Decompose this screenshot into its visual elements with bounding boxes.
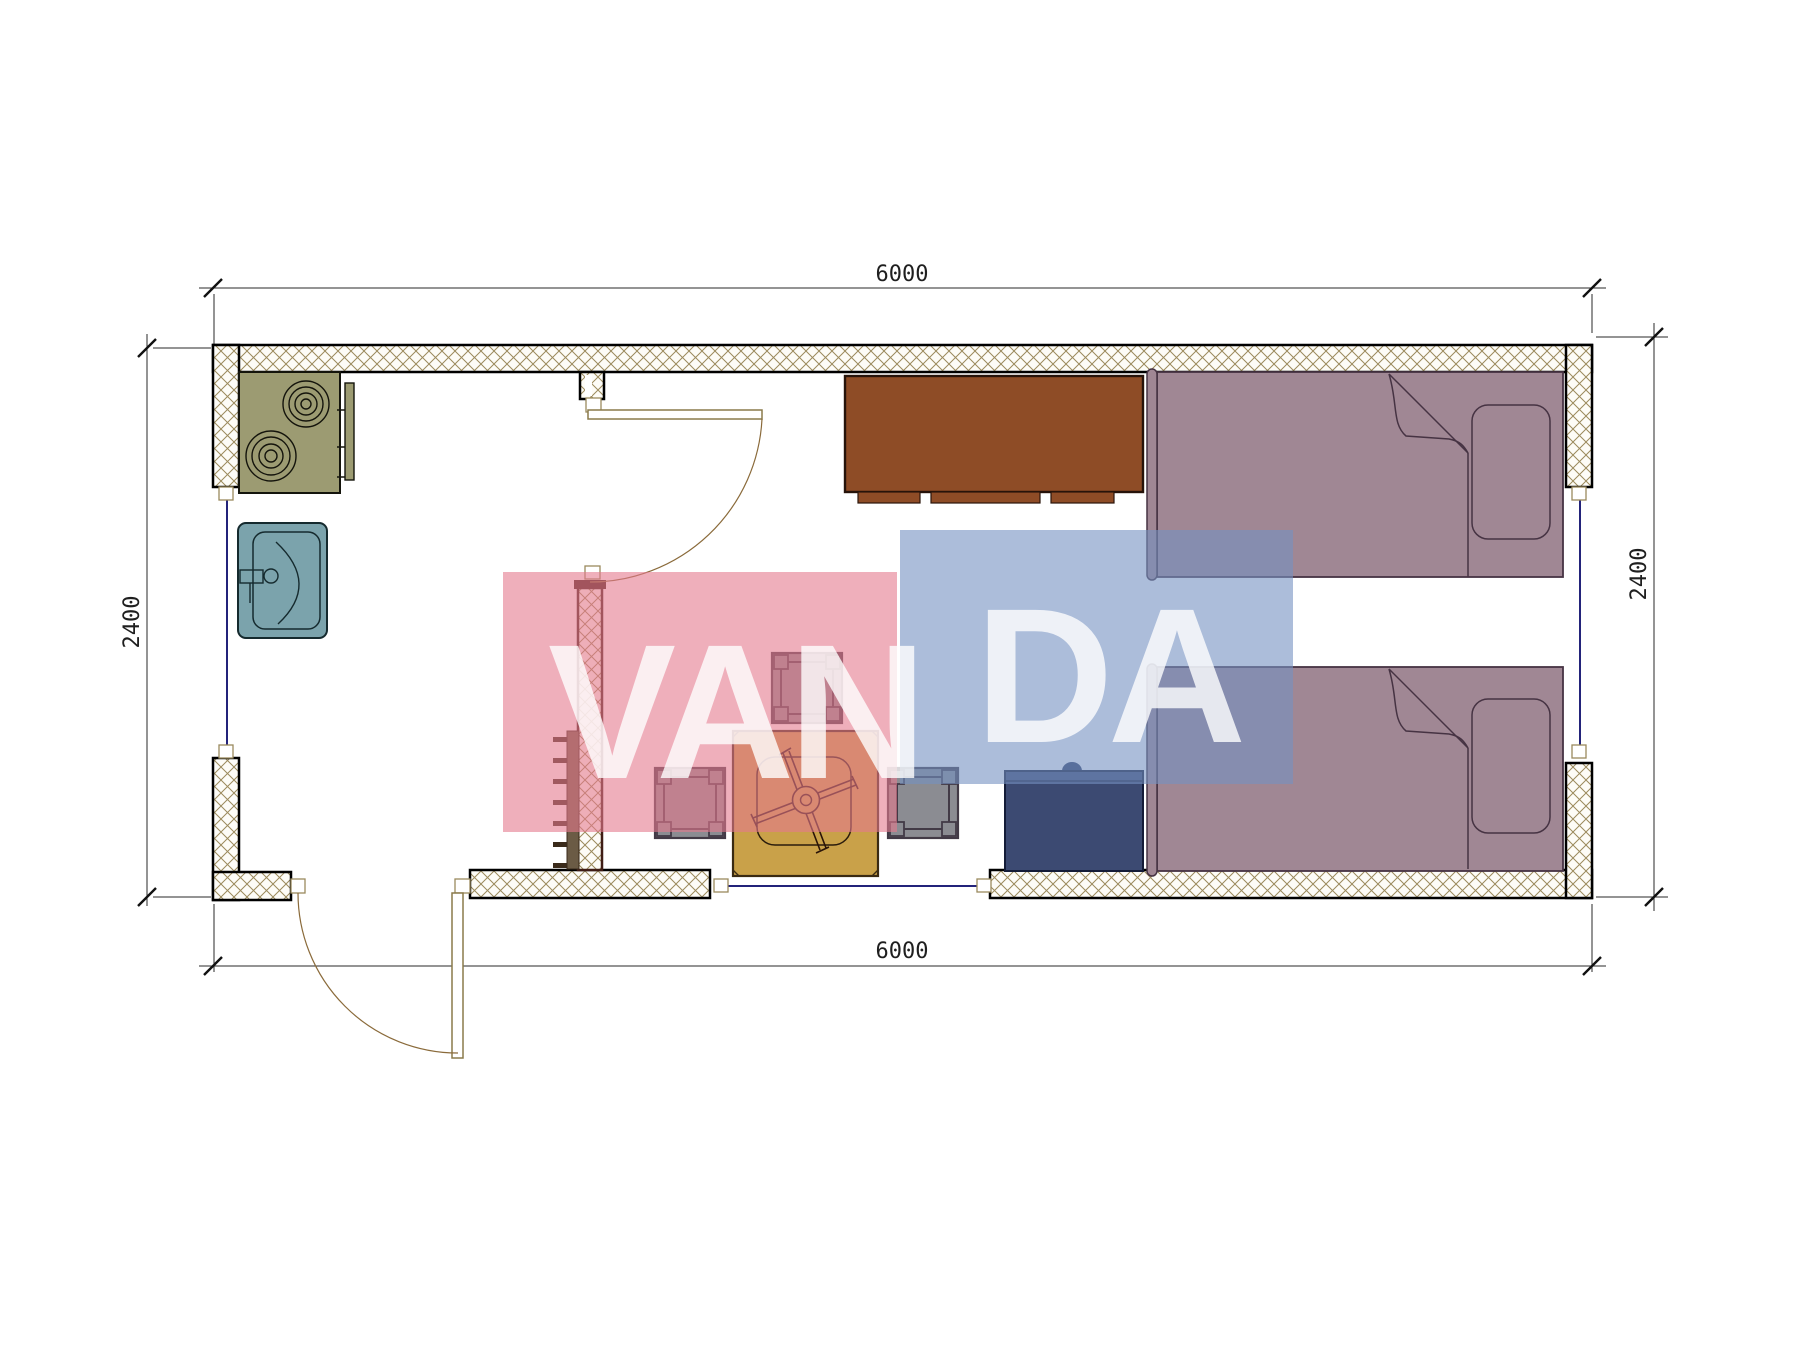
counter-bar [345, 383, 354, 480]
wall-top [213, 345, 1592, 372]
watermark-text-da: DA [975, 568, 1242, 783]
dimension-right: 2400 [1596, 323, 1668, 911]
entry-door-leaf [452, 893, 463, 1058]
interior-door-swing-arc [590, 419, 762, 582]
frame-block [714, 879, 728, 892]
stove-symbol [239, 372, 354, 493]
bed-pillow [1472, 405, 1550, 539]
door-frame-slot [585, 375, 592, 396]
interior-door [585, 398, 762, 582]
wardrobe-door-track [1051, 492, 1114, 503]
frame-block [977, 879, 991, 892]
wardrobe-symbol [845, 376, 1143, 503]
wall-bottom-right [990, 870, 1592, 898]
wardrobe-door-track [931, 492, 1040, 503]
entry-door [291, 879, 470, 1058]
dimension-left: 2400 [120, 334, 211, 906]
frame-block [219, 487, 233, 500]
frame-block [455, 879, 470, 893]
interior-door-leaf [588, 410, 762, 419]
wall-right-lower [1566, 763, 1592, 898]
wall-left-upper [213, 345, 239, 487]
watermark-text-van: VAN [548, 604, 921, 819]
wall-bottom-middle [470, 870, 710, 898]
floor-plan-canvas: 6000 6000 2400 2400 [0, 0, 1800, 1350]
sink-symbol [238, 523, 327, 638]
entry-door-swing-arc [298, 893, 458, 1053]
wardrobe-body [845, 376, 1143, 492]
dimension-bottom: 6000 [199, 904, 1606, 975]
dimension-top: 6000 [199, 262, 1606, 344]
wardrobe-door-track [858, 492, 920, 503]
dimension-left-label: 2400 [120, 596, 145, 649]
frame-block [219, 745, 233, 758]
dimension-bottom-label: 6000 [876, 939, 929, 964]
frame-block [1572, 745, 1586, 758]
frame-block [291, 879, 305, 893]
dimension-top-label: 6000 [876, 262, 929, 287]
dimension-right-label: 2400 [1627, 548, 1652, 601]
wall-bottom-left-stub [213, 872, 291, 900]
bed-pillow [1472, 699, 1550, 833]
nightstand-body [1005, 771, 1143, 871]
frame-block [1572, 487, 1586, 500]
wall-right-upper [1566, 345, 1592, 487]
sink-body [238, 523, 327, 638]
